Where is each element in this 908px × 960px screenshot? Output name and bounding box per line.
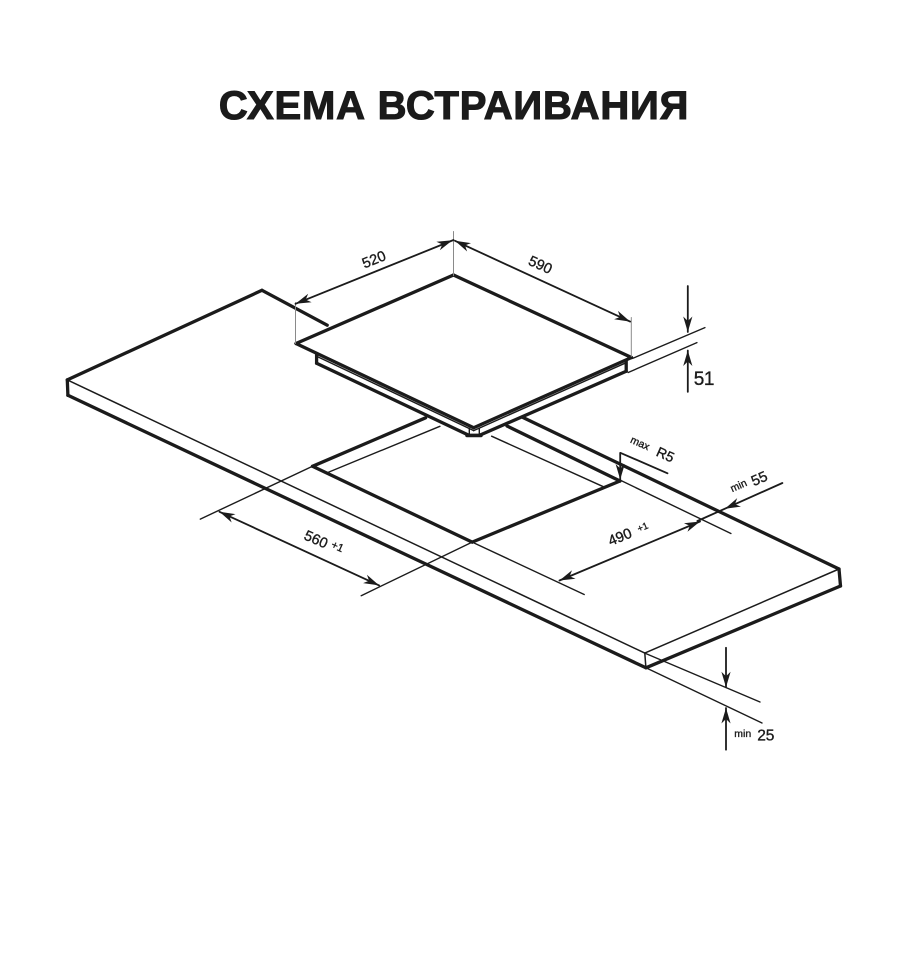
svg-text:55: 55 xyxy=(749,469,770,490)
svg-text:+1: +1 xyxy=(329,539,345,555)
svg-text:560: 560 xyxy=(301,528,330,552)
svg-text:490: 490 xyxy=(606,526,634,550)
svg-text:51: 51 xyxy=(694,369,714,390)
svg-text:+1: +1 xyxy=(636,521,650,535)
svg-text:590: 590 xyxy=(526,253,555,278)
svg-text:R5: R5 xyxy=(654,444,677,466)
svg-text:25: 25 xyxy=(757,728,774,745)
svg-text:max: max xyxy=(628,434,652,453)
svg-text:min: min xyxy=(729,477,749,495)
svg-text:min: min xyxy=(734,728,751,740)
